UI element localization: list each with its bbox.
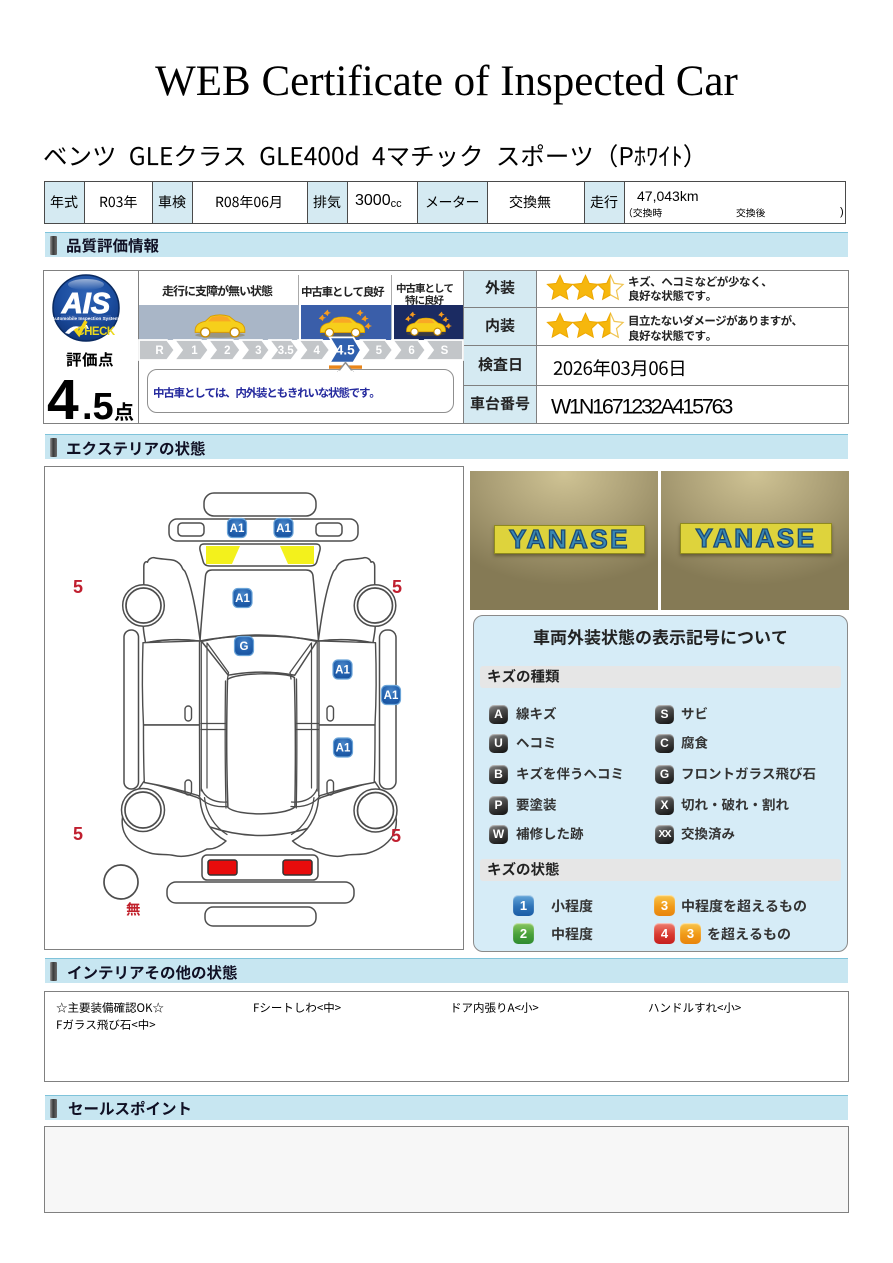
svg-text:3: 3 bbox=[255, 345, 261, 357]
svg-text:4.5: 4.5 bbox=[336, 343, 355, 358]
svg-text:A1: A1 bbox=[336, 743, 351, 755]
svg-text:A1: A1 bbox=[230, 523, 245, 535]
svg-text:6: 6 bbox=[408, 345, 414, 357]
svg-text:W1N1671232A415763: W1N1671232A415763 bbox=[551, 396, 733, 418]
svg-text:R: R bbox=[155, 345, 164, 357]
svg-text:A1: A1 bbox=[276, 523, 291, 535]
svg-text:4: 4 bbox=[47, 368, 79, 424]
svg-text:.5: .5 bbox=[82, 386, 114, 424]
svg-text:A1: A1 bbox=[235, 593, 250, 605]
svg-text:A1: A1 bbox=[384, 690, 399, 702]
svg-text:5: 5 bbox=[376, 345, 383, 357]
svg-text:G: G bbox=[240, 641, 249, 653]
svg-text:S: S bbox=[441, 345, 449, 357]
svg-text:2: 2 bbox=[224, 345, 230, 357]
svg-text:CHECK: CHECK bbox=[76, 326, 116, 338]
svg-text:3.5: 3.5 bbox=[278, 345, 295, 357]
svg-text:1: 1 bbox=[191, 345, 198, 357]
svg-text:4: 4 bbox=[313, 345, 320, 357]
svg-text:Automobile Inspection System.: Automobile Inspection System. bbox=[52, 316, 120, 321]
svg-text:A1: A1 bbox=[335, 665, 350, 677]
